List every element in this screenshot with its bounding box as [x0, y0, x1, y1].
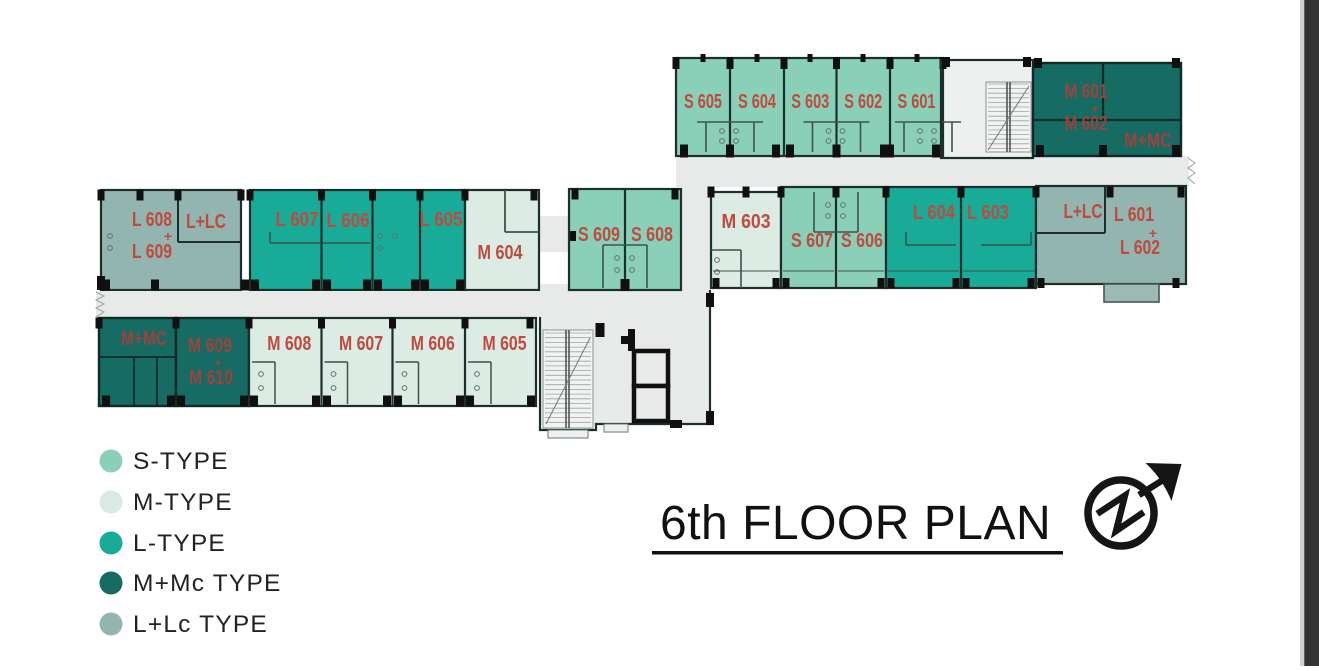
svg-text:S 603: S 603 — [791, 91, 829, 113]
svg-text:S-TYPE: S-TYPE — [133, 448, 229, 475]
svg-text:S 607: S 607 — [791, 230, 833, 252]
svg-text:L 607: L 607 — [276, 209, 319, 231]
svg-text:L-TYPE: L-TYPE — [133, 530, 226, 557]
svg-text:M 605: M 605 — [483, 333, 527, 355]
svg-text:L 603: L 603 — [967, 202, 1009, 224]
svg-text:M+MC: M+MC — [121, 328, 167, 350]
svg-text:M 602: M 602 — [1065, 113, 1108, 135]
svg-text:S 602: S 602 — [844, 91, 882, 113]
svg-text:L 609: L 609 — [132, 241, 172, 263]
svg-text:S 605: S 605 — [684, 91, 722, 113]
svg-text:L 601: L 601 — [1114, 204, 1154, 226]
svg-text:L 606: L 606 — [327, 210, 370, 232]
svg-text:6th FLOOR PLAN: 6th FLOOR PLAN — [660, 497, 1051, 550]
svg-text:L 602: L 602 — [1120, 237, 1160, 259]
svg-text:M-TYPE: M-TYPE — [133, 489, 233, 516]
svg-text:S 609: S 609 — [578, 224, 620, 246]
svg-text:M 610: M 610 — [189, 367, 233, 389]
svg-text:M+MC: M+MC — [1124, 130, 1172, 152]
svg-text:M 604: M 604 — [478, 242, 524, 264]
svg-text:L+Lc TYPE: L+Lc TYPE — [133, 611, 268, 638]
svg-text:S 601: S 601 — [898, 91, 936, 113]
svg-text:M 609: M 609 — [188, 335, 232, 357]
svg-text:M 606: M 606 — [411, 333, 455, 355]
svg-text:M 601: M 601 — [1065, 81, 1108, 103]
svg-text:M 607: M 607 — [339, 333, 383, 355]
svg-text:S 608: S 608 — [631, 224, 673, 246]
svg-text:L 604: L 604 — [913, 202, 956, 224]
svg-text:M+Mc TYPE: M+Mc TYPE — [133, 570, 282, 597]
svg-text:L+LC: L+LC — [186, 211, 226, 233]
svg-text:M 608: M 608 — [267, 333, 311, 355]
svg-text:S 606: S 606 — [841, 230, 883, 252]
svg-text:M 603: M 603 — [722, 211, 771, 233]
svg-text:S 604: S 604 — [738, 91, 777, 113]
svg-text:L 605: L 605 — [420, 209, 463, 231]
svg-text:L+LC: L+LC — [1064, 201, 1103, 223]
